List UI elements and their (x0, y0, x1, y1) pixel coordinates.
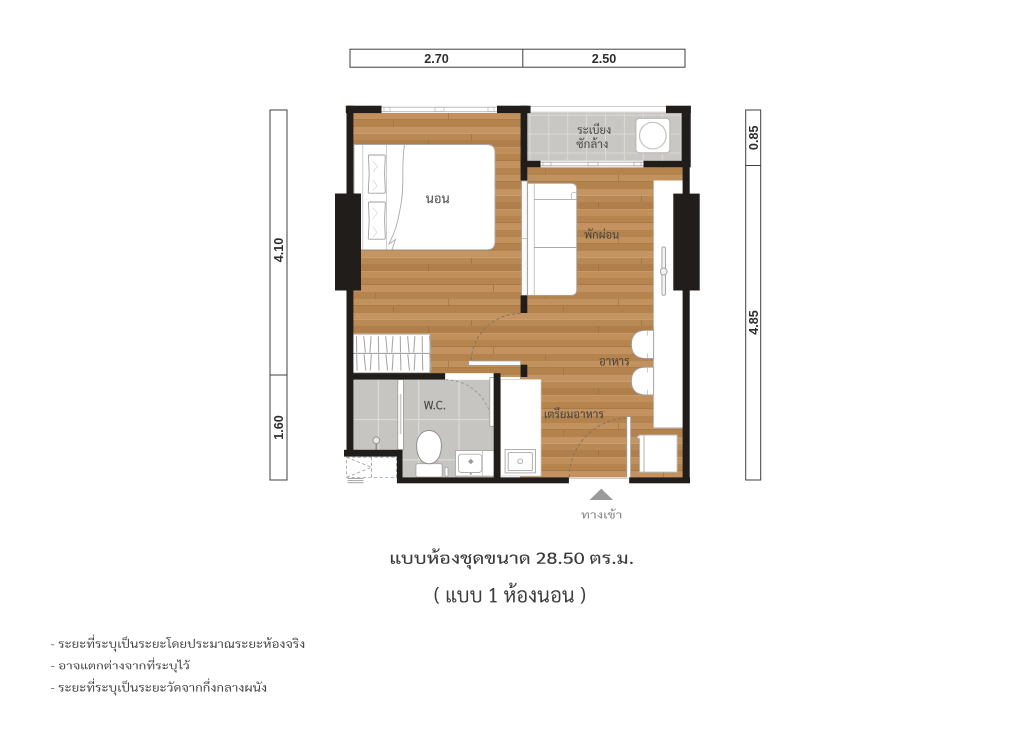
svg-text:2.70: 2.70 (424, 52, 449, 66)
svg-text:4.85: 4.85 (747, 310, 761, 335)
svg-text:0.85: 0.85 (747, 126, 761, 151)
svg-text:2.50: 2.50 (592, 52, 617, 66)
svg-text:1.60: 1.60 (272, 415, 286, 440)
svg-text:4.10: 4.10 (272, 238, 286, 263)
